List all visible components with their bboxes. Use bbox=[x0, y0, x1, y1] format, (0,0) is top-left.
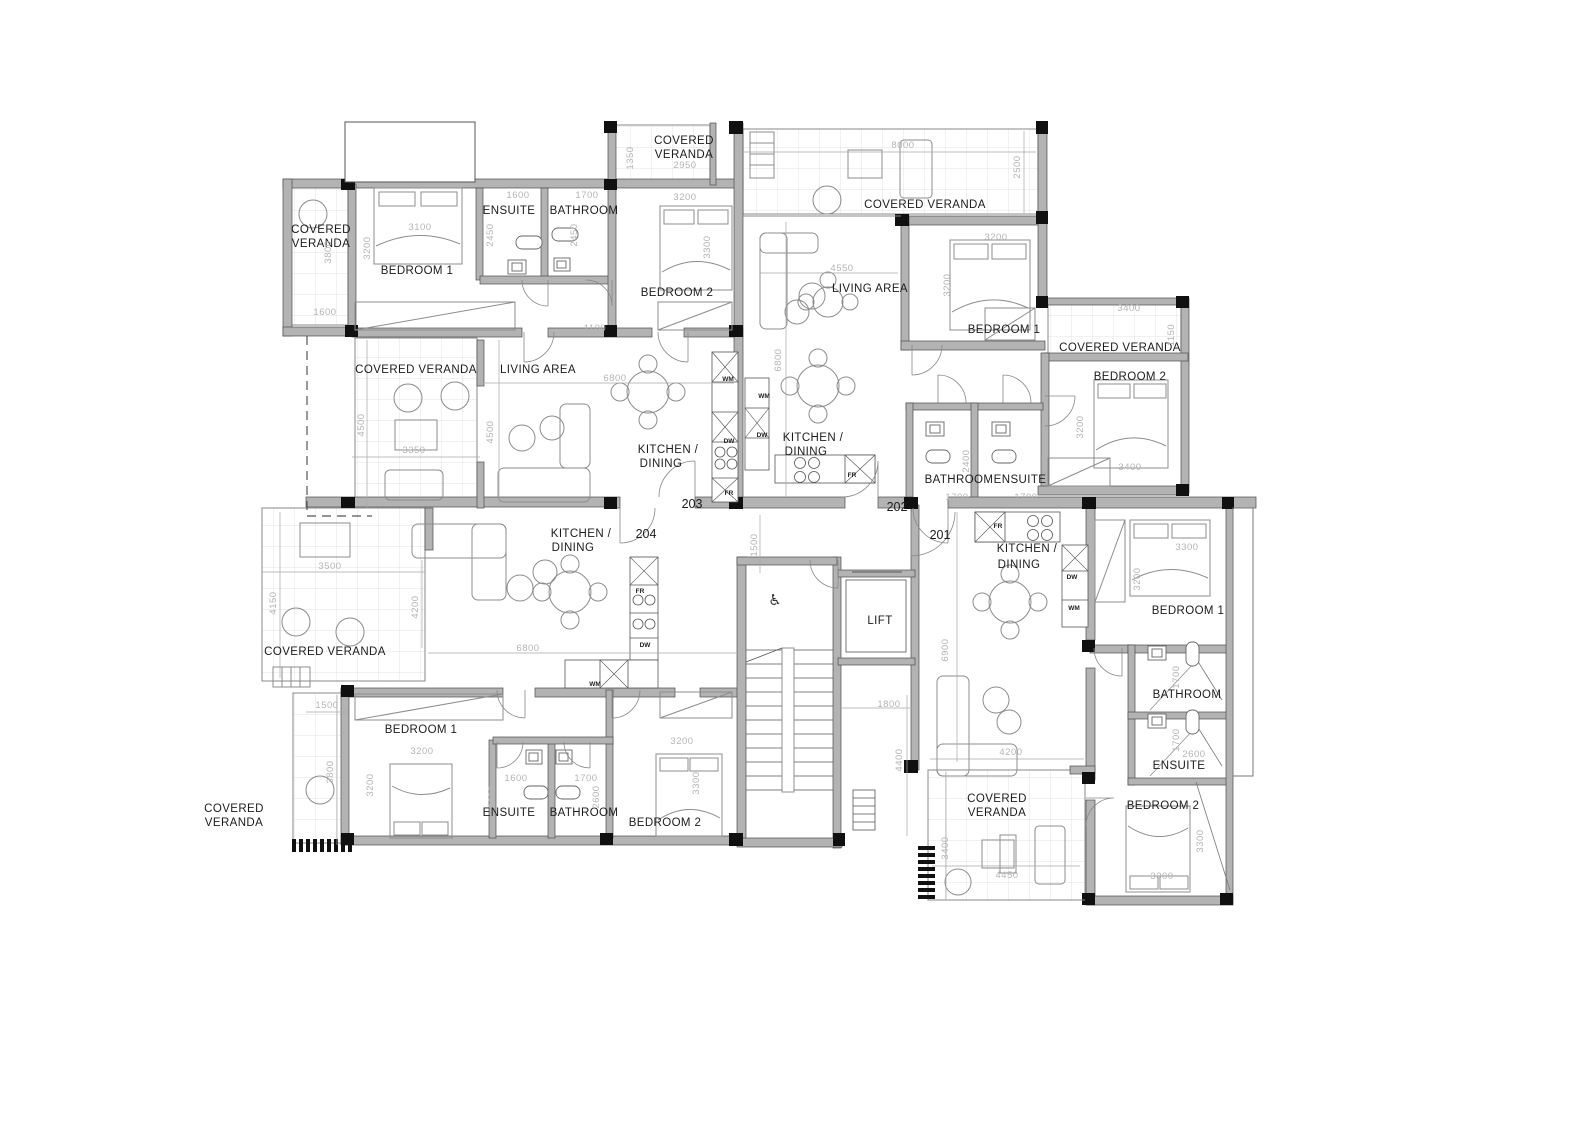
room-label: KITCHEN / bbox=[783, 432, 844, 444]
bed bbox=[950, 240, 1030, 330]
room-label: COVERED VERANDA bbox=[864, 199, 986, 211]
room-label: DINING bbox=[998, 559, 1041, 571]
dimension-label: 3200 bbox=[673, 192, 696, 203]
appliance-label: WM bbox=[722, 376, 734, 383]
sink bbox=[1148, 646, 1166, 660]
dimension-label: 2950 bbox=[673, 160, 696, 171]
appliance-label: DW bbox=[757, 432, 769, 439]
toilet bbox=[1186, 642, 1199, 666]
dimension-label: 4500 bbox=[485, 420, 496, 443]
dimension-label: 6800 bbox=[773, 348, 784, 371]
room-label: COVERED VERANDA bbox=[264, 646, 386, 658]
dimension-label: 6800 bbox=[516, 643, 539, 654]
room-label: COVERED VERANDA bbox=[1059, 342, 1181, 354]
dimension-label: 1700 bbox=[1171, 728, 1182, 751]
room-label: BATHROOM bbox=[1153, 689, 1222, 701]
kitchen-units bbox=[565, 352, 1088, 688]
dimension-label: 1700 bbox=[945, 492, 968, 503]
dimension-label: 1150 bbox=[1166, 324, 1177, 346]
room-label: BEDROOM 2 bbox=[1094, 371, 1167, 383]
dimension-label: 3100 bbox=[408, 222, 431, 233]
dimension-label: 3200 bbox=[670, 736, 693, 747]
dimension-label: 3300 bbox=[691, 771, 702, 794]
dimension-label: 2450 bbox=[569, 223, 580, 246]
dimension-label: 3200 bbox=[365, 773, 376, 796]
dimension-label: 3800 bbox=[323, 240, 334, 263]
room-label: BEDROOM 2 bbox=[1127, 800, 1200, 812]
room-label: BEDROOM 1 bbox=[381, 265, 454, 277]
room-label: KITCHEN / bbox=[551, 528, 612, 540]
dimension-label: 2450 bbox=[485, 223, 496, 246]
apartment-number: 201 bbox=[930, 528, 951, 542]
dimension-label: 4200 bbox=[999, 747, 1022, 758]
room-label: ENSUITE bbox=[483, 205, 536, 217]
toilet bbox=[524, 786, 548, 799]
dimension-label: 1700 bbox=[1171, 665, 1182, 688]
room-label: BEDROOM 1 bbox=[1152, 605, 1225, 617]
toilet bbox=[926, 450, 950, 463]
dimension-label: 3400 bbox=[1117, 303, 1140, 314]
dimension-label: 3400 bbox=[1118, 462, 1141, 473]
dimension-label: 8000 bbox=[891, 140, 914, 151]
dimension-label: 3300 bbox=[1195, 829, 1206, 852]
room-label: COVERED bbox=[654, 135, 714, 147]
room-label: COVERED VERANDA bbox=[355, 364, 477, 376]
dimension-label: 1350 bbox=[625, 146, 636, 169]
room-label: BATHROOM bbox=[550, 205, 619, 217]
dimension-label: 2400 bbox=[961, 449, 972, 472]
appliance-label: DW bbox=[1067, 574, 1079, 581]
sofa bbox=[498, 404, 590, 502]
room-label: BEDROOM 1 bbox=[385, 724, 458, 736]
dimension-label: 2600 bbox=[591, 785, 602, 808]
room-label: VERANDA bbox=[968, 807, 1026, 819]
appliance-label: DW bbox=[640, 642, 652, 649]
dimension-label: 1700 bbox=[575, 190, 598, 201]
dining-table bbox=[781, 349, 855, 423]
room-label: LIVING AREA bbox=[500, 364, 576, 376]
dimension-label: 1800 bbox=[877, 699, 900, 710]
structure-outlines bbox=[307, 122, 1253, 900]
dimension-label: 4450 bbox=[995, 870, 1018, 881]
appliance-label: WM bbox=[1068, 605, 1080, 612]
dimension-label: 4150 bbox=[268, 591, 279, 614]
dimension-label: 1500 bbox=[749, 533, 760, 556]
room-label: VERANDA bbox=[292, 238, 350, 250]
appliance-label: FR bbox=[636, 588, 645, 595]
room-label: KITCHEN / bbox=[997, 543, 1058, 555]
sink bbox=[926, 422, 944, 436]
dimension-label: 3200 bbox=[984, 232, 1007, 243]
dimension-label: 1700 bbox=[1014, 492, 1037, 503]
sofa bbox=[412, 524, 557, 601]
dimension-label: 2600 bbox=[1182, 749, 1205, 760]
dimension-label: 4400 bbox=[894, 748, 905, 771]
floor-plan-page: COVEREDVERANDABEDROOM 1ENSUITEBATHROOMCO… bbox=[0, 0, 1588, 1123]
dimension-label: 3350 bbox=[402, 445, 425, 456]
walls-layer bbox=[283, 123, 1256, 905]
dimension-label: 1600 bbox=[504, 773, 527, 784]
appliance-label: FR bbox=[725, 490, 734, 497]
dimension-label: 3500 bbox=[318, 561, 341, 572]
dimension-label: 2600 bbox=[487, 785, 498, 808]
dimension-label: 1600 bbox=[506, 190, 529, 201]
appliance-label: WM bbox=[758, 393, 770, 400]
apartment-number: 202 bbox=[887, 500, 908, 514]
room-label: ENSUITE bbox=[994, 474, 1047, 486]
dimension-label: 1600 bbox=[313, 307, 336, 318]
dimension-label: 3800 bbox=[325, 760, 336, 783]
room-label: VERANDA bbox=[205, 817, 263, 829]
sink bbox=[508, 260, 526, 274]
dining-table bbox=[611, 355, 685, 429]
apartment-number: 203 bbox=[682, 497, 703, 511]
dimension-label: 3200 bbox=[1075, 415, 1086, 438]
dimension-label: 1500 bbox=[315, 700, 338, 711]
room-label: DINING bbox=[640, 458, 683, 470]
dimension-label: 3300 bbox=[702, 235, 713, 258]
room-label: LIVING AREA bbox=[832, 283, 908, 295]
dimension-label: 1100 bbox=[584, 323, 606, 334]
room-label: DINING bbox=[552, 542, 595, 554]
room-label: KITCHEN / bbox=[638, 444, 699, 456]
kitchen-203 bbox=[712, 352, 738, 502]
sofa bbox=[937, 676, 1021, 776]
room-label: COVERED bbox=[204, 803, 264, 815]
toilet bbox=[1186, 710, 1199, 734]
room-label: BATHROOM bbox=[925, 474, 994, 486]
room-label: BEDROOM 1 bbox=[968, 324, 1041, 336]
staircase bbox=[746, 648, 833, 792]
bed bbox=[390, 764, 452, 838]
sink bbox=[526, 750, 542, 764]
dimension-label: 3400 bbox=[940, 836, 951, 859]
room-label: COVERED bbox=[291, 224, 351, 236]
dimension-label: 3300 bbox=[1150, 871, 1173, 882]
room-label: LIFT bbox=[867, 615, 892, 627]
bed bbox=[660, 206, 732, 290]
sink bbox=[992, 422, 1010, 436]
dining-table bbox=[533, 555, 607, 629]
room-label: DINING bbox=[785, 446, 828, 458]
sofa bbox=[760, 233, 825, 329]
accessible-wc-icon: ♿ bbox=[768, 592, 781, 609]
sink bbox=[554, 258, 570, 271]
dimension-label: 3200 bbox=[362, 236, 373, 259]
bed bbox=[1094, 380, 1168, 468]
toilet bbox=[556, 786, 580, 799]
floor-plan-canvas: COVEREDVERANDABEDROOM 1ENSUITEBATHROOMCO… bbox=[0, 0, 1588, 1123]
dimension-label: 3200 bbox=[410, 746, 433, 757]
dimension-label: 3300 bbox=[1175, 542, 1198, 553]
entry-steps bbox=[853, 790, 875, 830]
dimension-label: 4500 bbox=[356, 413, 367, 436]
dimension-label: 4200 bbox=[410, 595, 421, 618]
dimension-label: 6800 bbox=[603, 373, 626, 384]
dimension-label: 4550 bbox=[830, 263, 853, 274]
room-label: BATHROOM bbox=[550, 807, 619, 819]
dimension-label: 6900 bbox=[940, 638, 951, 661]
appliance-label: FR bbox=[994, 523, 1003, 530]
toilet bbox=[992, 450, 1016, 463]
toilet bbox=[516, 236, 542, 249]
appliance-label: DW bbox=[724, 438, 736, 445]
dimension-label: 1700 bbox=[574, 773, 597, 784]
dining-table bbox=[973, 565, 1047, 639]
room-label: ENSUITE bbox=[1153, 760, 1206, 772]
room-label: COVERED bbox=[967, 793, 1027, 805]
sink bbox=[1148, 714, 1166, 728]
dimension-label: 3200 bbox=[1132, 567, 1143, 590]
appliance-label: FR bbox=[848, 472, 857, 479]
dimension-label: 3200 bbox=[942, 273, 953, 296]
room-label: BEDROOM 2 bbox=[641, 287, 714, 299]
room-label: BEDROOM 2 bbox=[629, 817, 702, 829]
dimension-label: 2500 bbox=[1012, 155, 1023, 178]
apartment-number: 204 bbox=[636, 527, 657, 541]
appliance-label: WM bbox=[589, 681, 601, 688]
sink bbox=[556, 750, 572, 764]
